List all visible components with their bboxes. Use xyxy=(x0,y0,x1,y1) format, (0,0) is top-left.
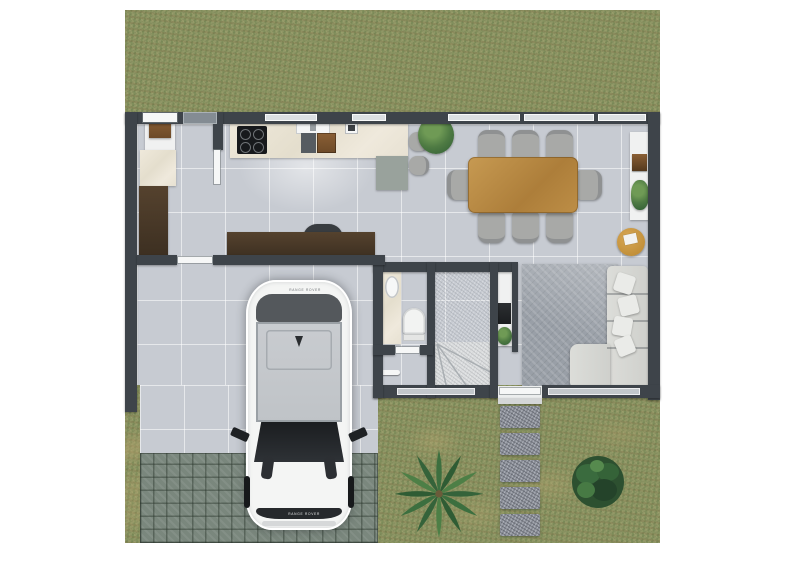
wall-garage-north-a xyxy=(137,255,177,265)
car-front-lip xyxy=(262,521,336,526)
console-plant xyxy=(497,327,512,345)
wall-powder-south-a xyxy=(373,345,395,355)
laundry-door xyxy=(214,150,220,184)
sofa-chaise xyxy=(570,344,610,390)
kitchen-window xyxy=(265,114,317,121)
toilet-tank xyxy=(403,334,425,341)
burner xyxy=(240,142,251,153)
south-window-right xyxy=(548,388,640,395)
car-wheel-left xyxy=(244,476,250,508)
appliance-inner xyxy=(348,125,355,131)
wall-entry xyxy=(512,262,518,352)
dish-tray xyxy=(301,133,316,153)
wall-powder-south-b xyxy=(420,345,433,355)
wash-basin xyxy=(385,276,399,298)
wall-west xyxy=(125,112,137,412)
stepping-stone xyxy=(500,514,540,536)
wall-garage-north-b xyxy=(213,255,385,265)
dining-chair xyxy=(577,170,602,200)
round-bush xyxy=(570,452,626,510)
laundry-counter xyxy=(140,150,176,186)
car-rear-badge: RANGE ROVER xyxy=(289,288,311,292)
faucet xyxy=(310,124,316,131)
bar-stool xyxy=(409,156,429,175)
stepping-stone xyxy=(500,433,540,455)
wall-stair-left xyxy=(427,262,435,398)
car-front-badge: RANGE ROVER xyxy=(288,512,310,516)
dining-window xyxy=(448,114,520,121)
trailing-plant xyxy=(631,180,649,210)
garage-internal-door xyxy=(178,257,212,263)
tall-wood-cabinet xyxy=(139,186,168,258)
palm-tree xyxy=(393,444,485,540)
dining-chair xyxy=(546,212,573,243)
cutting-board xyxy=(317,133,336,153)
dining-table xyxy=(468,157,578,213)
car-wheel-right xyxy=(348,476,354,508)
stepping-stone xyxy=(500,406,540,428)
powder-room-door xyxy=(396,347,419,353)
dining-window xyxy=(598,114,646,121)
burner xyxy=(253,129,264,140)
laundry-window xyxy=(143,113,177,122)
wall-garage-hall xyxy=(373,262,383,398)
dining-chair xyxy=(512,212,539,243)
burner xyxy=(240,129,251,140)
car: RANGE ROVER RANGE ROVER xyxy=(246,280,352,530)
kitchen-window xyxy=(352,114,386,121)
porch-step xyxy=(498,398,542,404)
stairs-straight-flight xyxy=(435,266,490,342)
wall-stair-right xyxy=(490,262,498,398)
front-door xyxy=(500,388,540,394)
toilet-bowl xyxy=(403,308,425,334)
stepping-stone xyxy=(500,487,540,509)
stepping-stone xyxy=(500,460,540,482)
sofa-pillow xyxy=(611,315,633,337)
car-antenna-fin xyxy=(295,336,303,347)
espresso-machine xyxy=(498,303,511,324)
decor-box xyxy=(632,154,647,171)
dining-window xyxy=(524,114,594,121)
burner xyxy=(253,142,264,153)
car-rear-glass xyxy=(256,294,342,322)
wall-east xyxy=(648,112,660,400)
dining-chair xyxy=(478,212,505,243)
floor-plan-render: RANGE ROVER RANGE ROVER xyxy=(0,0,800,566)
sliding-door-panel xyxy=(183,112,217,124)
south-window-left xyxy=(397,388,475,395)
kitchen-peninsula xyxy=(376,156,408,190)
